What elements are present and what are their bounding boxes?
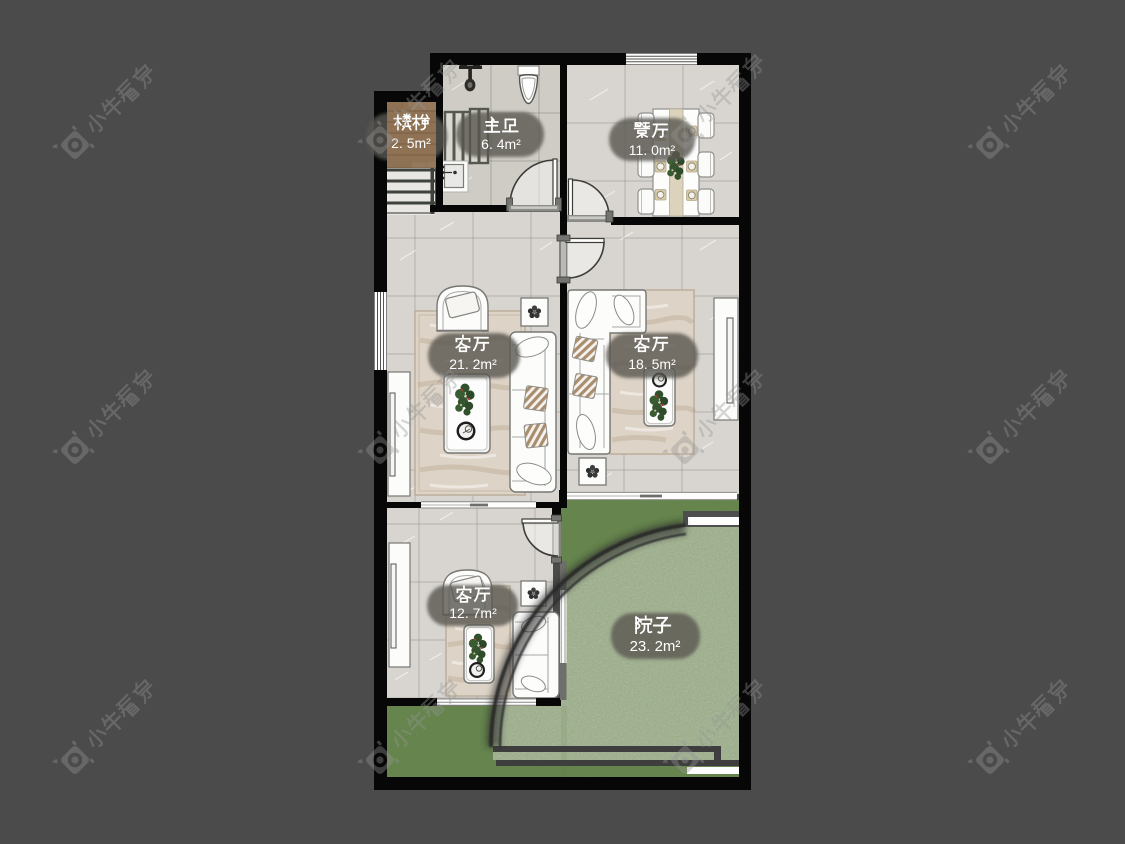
svg-text:11. 0m²: 11. 0m² — [629, 142, 676, 158]
svg-text:2. 5m²: 2. 5m² — [391, 135, 431, 151]
svg-text:18. 5m²: 18. 5m² — [628, 356, 676, 372]
svg-text:23. 2m²: 23. 2m² — [630, 638, 681, 655]
svg-text:6. 4m²: 6. 4m² — [481, 136, 521, 152]
svg-text:12. 7m²: 12. 7m² — [449, 605, 497, 621]
svg-text:21. 2m²: 21. 2m² — [449, 356, 497, 372]
